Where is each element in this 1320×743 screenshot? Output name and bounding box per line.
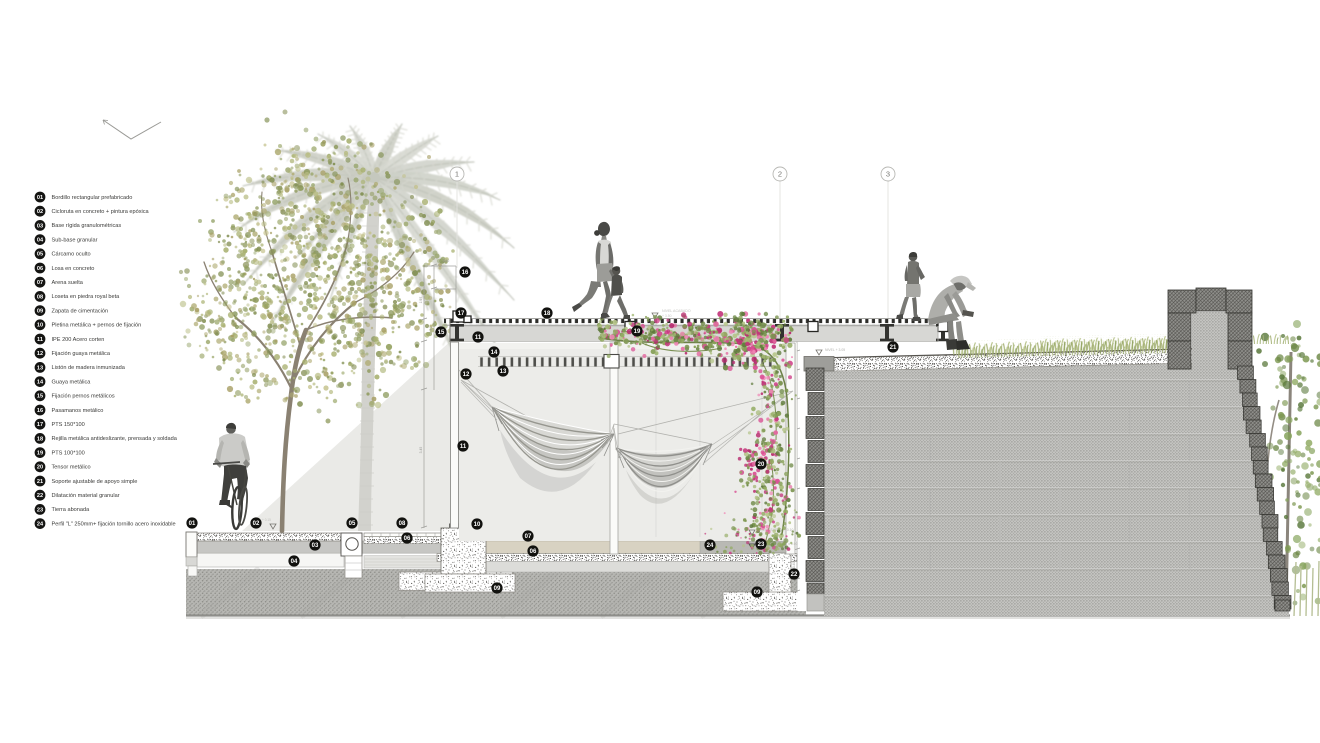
svg-text:18: 18: [544, 311, 551, 317]
svg-text:2: 2: [778, 170, 782, 179]
svg-text:09: 09: [754, 590, 761, 596]
svg-text:16: 16: [462, 270, 469, 276]
svg-text:03: 03: [37, 223, 43, 229]
svg-text:+ 3.50: + 3.50: [662, 314, 672, 318]
svg-text:Pasamanos metálico: Pasamanos metálico: [52, 408, 104, 414]
svg-text:12: 12: [463, 372, 470, 378]
svg-text:15: 15: [37, 394, 43, 400]
svg-text:23: 23: [37, 507, 43, 513]
svg-text:03: 03: [312, 543, 319, 549]
svg-text:02: 02: [253, 521, 260, 527]
svg-text:Sub-base granular: Sub-base granular: [52, 237, 98, 243]
svg-text:Pletina metálica + pernos de f: Pletina metálica + pernos de fijación: [52, 323, 142, 329]
svg-text:11: 11: [475, 335, 482, 341]
svg-text:14: 14: [491, 350, 498, 356]
svg-text:09: 09: [37, 309, 43, 315]
svg-text:0.41: 0.41: [429, 327, 433, 334]
svg-text:06: 06: [404, 536, 411, 542]
svg-text:Rejilla metálica antideslizant: Rejilla metálica antideslizante, prensad…: [52, 436, 178, 442]
svg-text:22: 22: [791, 572, 798, 578]
svg-text:17: 17: [37, 422, 43, 428]
svg-text:20: 20: [758, 462, 765, 468]
svg-text:12: 12: [37, 351, 43, 357]
svg-text:Soporte ajustable de apoyo sim: Soporte ajustable de apoyo simple: [52, 479, 138, 485]
svg-text:+ 0.15: + 0.15: [262, 518, 271, 522]
svg-text:Cárcamo oculto: Cárcamo oculto: [52, 252, 91, 258]
svg-text:17: 17: [458, 311, 465, 317]
svg-text:20: 20: [37, 465, 43, 471]
svg-text:10: 10: [474, 522, 481, 528]
svg-text:PTS 100*100: PTS 100*100: [52, 450, 85, 456]
svg-text:Tierra abonada: Tierra abonada: [52, 507, 91, 513]
svg-text:3.45: 3.45: [419, 447, 423, 454]
svg-text:05: 05: [37, 252, 43, 258]
svg-text:Loseta en piedra royal beta: Loseta en piedra royal beta: [52, 294, 121, 300]
svg-text:2.45: 2.45: [618, 452, 622, 458]
svg-text:01: 01: [189, 521, 196, 527]
svg-text:19: 19: [37, 451, 43, 457]
svg-text:21: 21: [37, 479, 43, 485]
svg-text:21: 21: [890, 345, 897, 351]
svg-text:Perfil "L" 250mm+ fijación tor: Perfil "L" 250mm+ fijación tornillo acer…: [52, 521, 176, 527]
svg-text:Bordillo rectangular prefabric: Bordillo rectangular prefabricado: [52, 195, 133, 201]
svg-text:07: 07: [37, 280, 43, 286]
svg-text:01: 01: [37, 195, 43, 201]
svg-text:Dilatación material granular: Dilatación material granular: [52, 493, 120, 499]
svg-text:06: 06: [37, 266, 43, 272]
svg-text:0.90: 0.90: [443, 259, 450, 263]
svg-text:Listón de madera inmunizada: Listón de madera inmunizada: [52, 365, 126, 371]
svg-text:09: 09: [494, 586, 501, 592]
svg-text:Fijación guaya metálica: Fijación guaya metálica: [52, 351, 111, 357]
svg-text:NIVEL + 3.05: NIVEL + 3.05: [825, 348, 845, 352]
svg-text:11: 11: [460, 444, 467, 450]
svg-text:10: 10: [37, 323, 43, 329]
svg-text:08: 08: [37, 294, 43, 300]
svg-text:05: 05: [349, 521, 356, 527]
svg-text:Tensor metálico: Tensor metálico: [52, 465, 91, 471]
svg-text:14: 14: [37, 380, 44, 386]
svg-text:22: 22: [37, 493, 43, 499]
svg-text:IPE 200 Acero corten: IPE 200 Acero corten: [52, 337, 105, 343]
svg-text:Guaya metálica: Guaya metálica: [52, 379, 92, 385]
svg-text:PTS 150*100: PTS 150*100: [52, 422, 85, 428]
svg-text:04: 04: [291, 559, 298, 565]
svg-text:NIVEL ACABADO: NIVEL ACABADO: [662, 309, 691, 313]
svg-text:07: 07: [525, 534, 532, 540]
svg-text:11: 11: [37, 337, 43, 343]
svg-text:1: 1: [455, 170, 459, 179]
svg-text:0.40: 0.40: [792, 562, 796, 568]
svg-text:23: 23: [758, 542, 765, 548]
svg-text:15: 15: [438, 330, 445, 336]
svg-text:16: 16: [37, 408, 43, 414]
svg-text:Base rígida granulométricas: Base rígida granulométricas: [52, 223, 122, 229]
svg-text:06: 06: [530, 549, 537, 555]
svg-text:1.97: 1.97: [419, 297, 423, 304]
svg-text:Arena suelta: Arena suelta: [52, 280, 84, 286]
svg-text:18: 18: [37, 436, 43, 442]
svg-text:Zapata de cimentación: Zapata de cimentación: [52, 308, 109, 314]
svg-text:19: 19: [634, 329, 641, 335]
svg-text:Losa en concreto: Losa en concreto: [52, 266, 95, 272]
svg-text:3: 3: [886, 170, 890, 179]
svg-text:13: 13: [37, 365, 43, 371]
svg-text:24: 24: [37, 522, 44, 528]
svg-text:Cicloruta en concreto + pintur: Cicloruta en concreto + pintura epóxica: [52, 209, 150, 215]
svg-text:13: 13: [500, 369, 507, 375]
svg-text:04: 04: [37, 238, 44, 244]
svg-text:Fijación pernos metálicos: Fijación pernos metálicos: [52, 394, 115, 400]
svg-text:24: 24: [707, 543, 714, 549]
svg-text:02: 02: [37, 209, 43, 215]
svg-text:08: 08: [399, 521, 406, 527]
